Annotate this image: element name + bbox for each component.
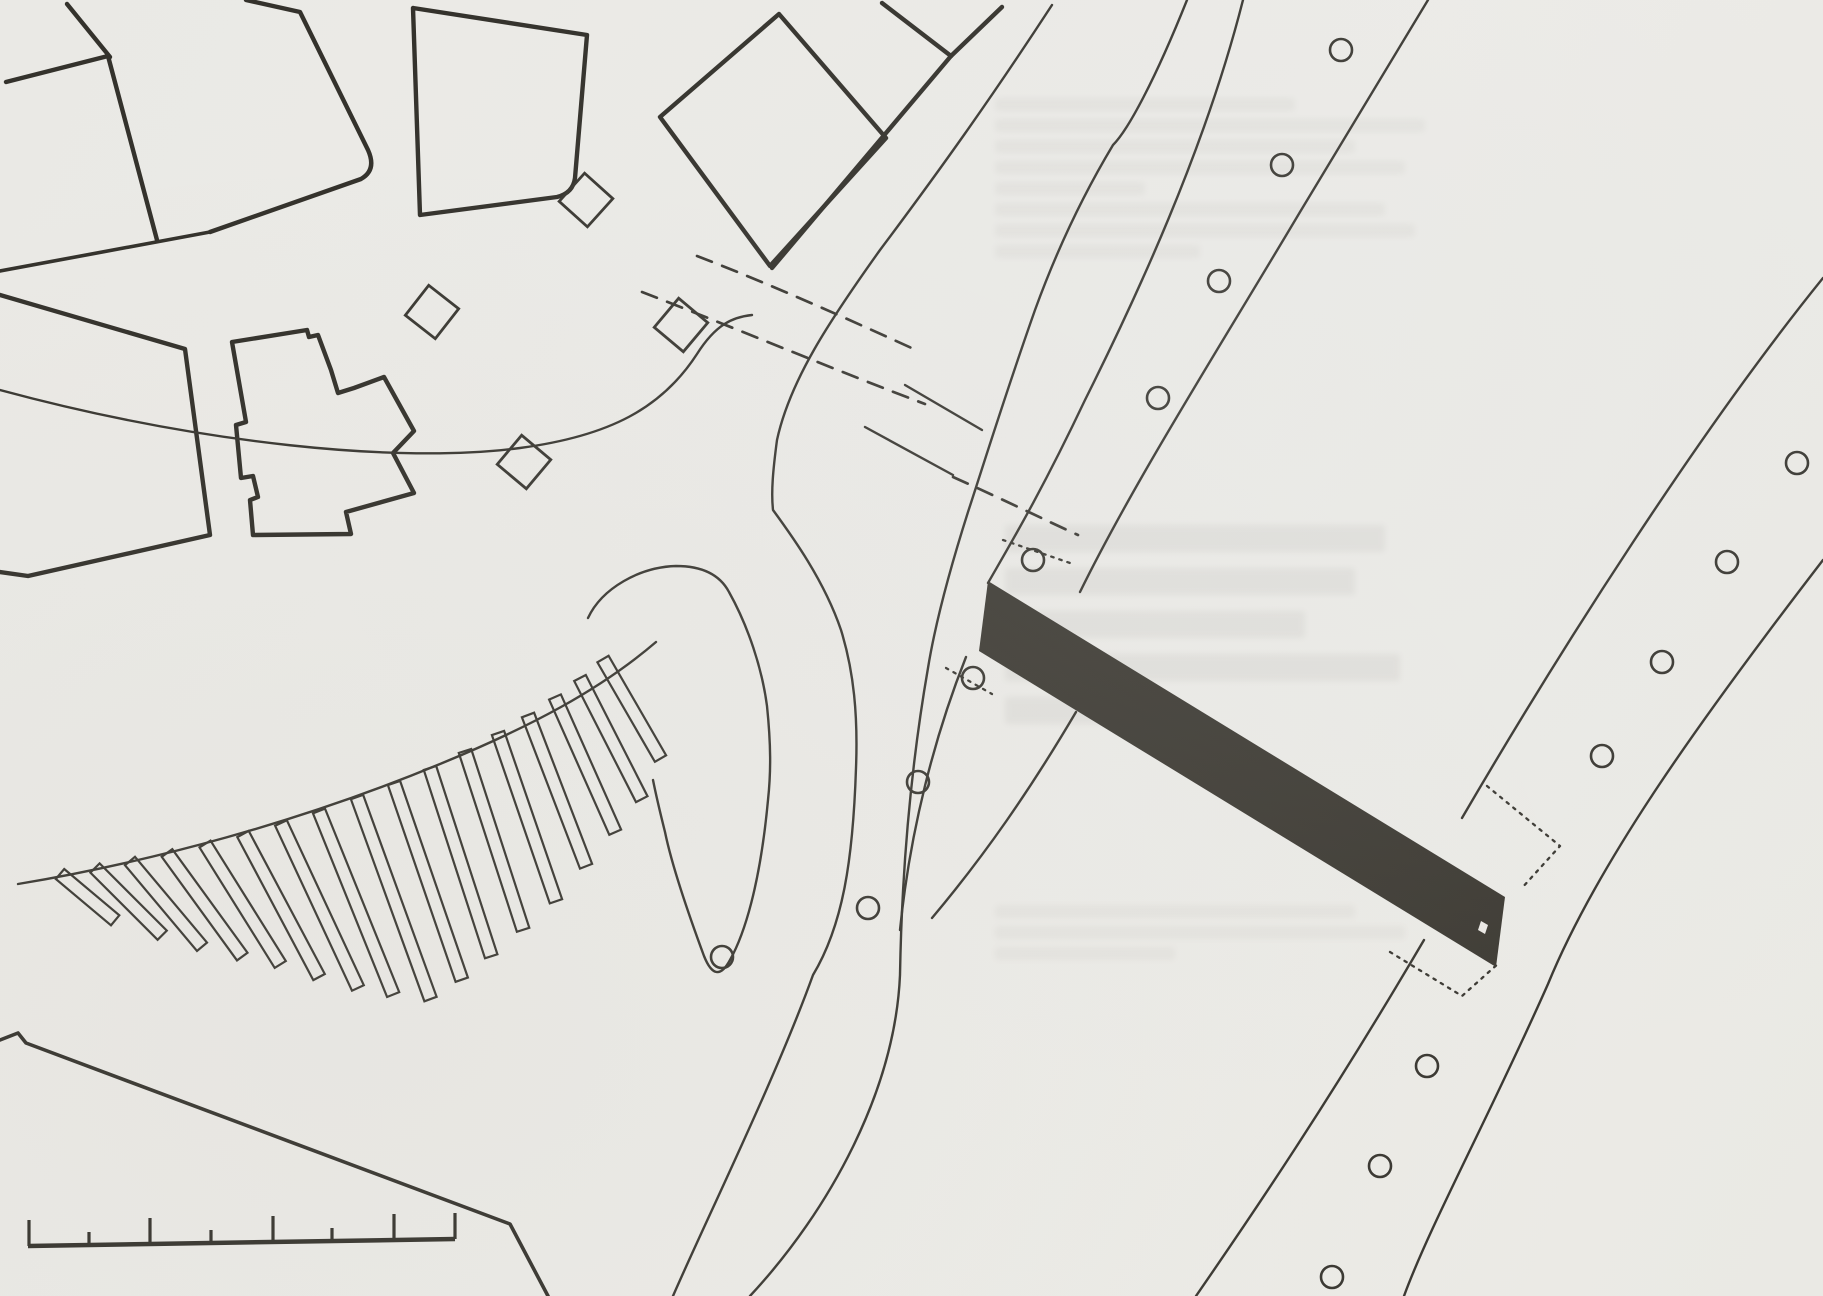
street-edges-heavy-path (0, 1033, 548, 1296)
roads-path (1080, 0, 1428, 592)
dashed-crossings-path (642, 292, 925, 404)
tree-circle (1786, 452, 1808, 474)
tree-circle (1591, 745, 1613, 767)
tree-circle (1208, 270, 1230, 292)
roads-path (18, 642, 656, 884)
tree-circle (1416, 1055, 1438, 1077)
buildings-path (232, 330, 414, 535)
roads-path (988, 0, 1243, 583)
kiosk-square (559, 173, 613, 227)
scanned-site-plan-page (0, 0, 1823, 1296)
layer-tree-circles (711, 39, 1808, 1288)
tree-circle (1271, 154, 1293, 176)
tree-circle (1147, 387, 1169, 409)
pier-strip (388, 781, 468, 982)
roads-path (588, 566, 770, 972)
roads-path (1196, 940, 1424, 1296)
roads-path (0, 315, 752, 453)
roads-path (932, 712, 1076, 918)
buildings-path (0, 295, 210, 576)
pier-strip (56, 869, 120, 925)
buildings-path (6, 56, 157, 240)
kiosk-square (405, 285, 458, 338)
buildings-path (413, 8, 587, 215)
dotted-marks-path (1003, 540, 1070, 563)
street-edges-heavy-path (0, 232, 210, 271)
layer-buildings (0, 0, 1002, 576)
buildings-path (882, 3, 951, 56)
tree-circle (1022, 549, 1044, 571)
tree-circle (1369, 1155, 1391, 1177)
roads-path (1462, 278, 1823, 818)
buildings-path (660, 14, 886, 266)
tree-circle (1330, 39, 1352, 61)
footbridge-bar (979, 581, 1505, 967)
roads-path (905, 385, 982, 430)
dashed-crossings-path (697, 256, 916, 350)
tree-circle (857, 897, 879, 919)
tree-circle (962, 667, 984, 689)
layer-pier-strips (56, 656, 666, 1002)
scale-bar (28, 1213, 455, 1246)
buildings-path (67, 4, 110, 57)
buildings-path (772, 56, 951, 268)
layer-dashed-crossings (642, 256, 1078, 535)
roads-path (750, 0, 1187, 1296)
tree-circle (1651, 651, 1673, 673)
dotted-marks-path (1487, 786, 1560, 889)
pier-strip (522, 713, 592, 869)
buildings-path (210, 0, 371, 232)
roads-path (865, 427, 953, 475)
site-plan-drawing (0, 0, 1823, 1296)
tree-circle (1716, 551, 1738, 573)
tree-circle (1321, 1266, 1343, 1288)
dashed-crossings-path (953, 477, 1078, 535)
pier-strip (351, 795, 437, 1002)
scale-bar-baseline (28, 1239, 455, 1246)
tree-circle (711, 946, 733, 968)
layer-street-edges-heavy (0, 232, 548, 1296)
buildings-path (951, 7, 1002, 56)
layer-roads (0, 0, 1823, 1296)
